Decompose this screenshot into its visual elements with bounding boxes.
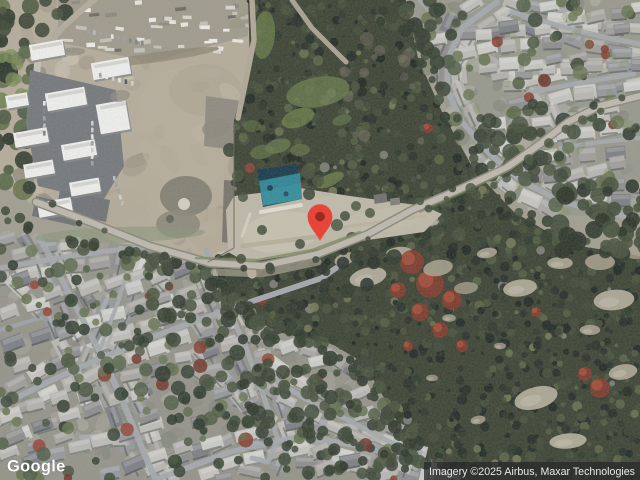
svg-text:Google: Google xyxy=(7,458,66,476)
svg-text:Imagery ©2025 Airbus, Maxar Te: Imagery ©2025 Airbus, Maxar Technologies xyxy=(429,466,635,478)
